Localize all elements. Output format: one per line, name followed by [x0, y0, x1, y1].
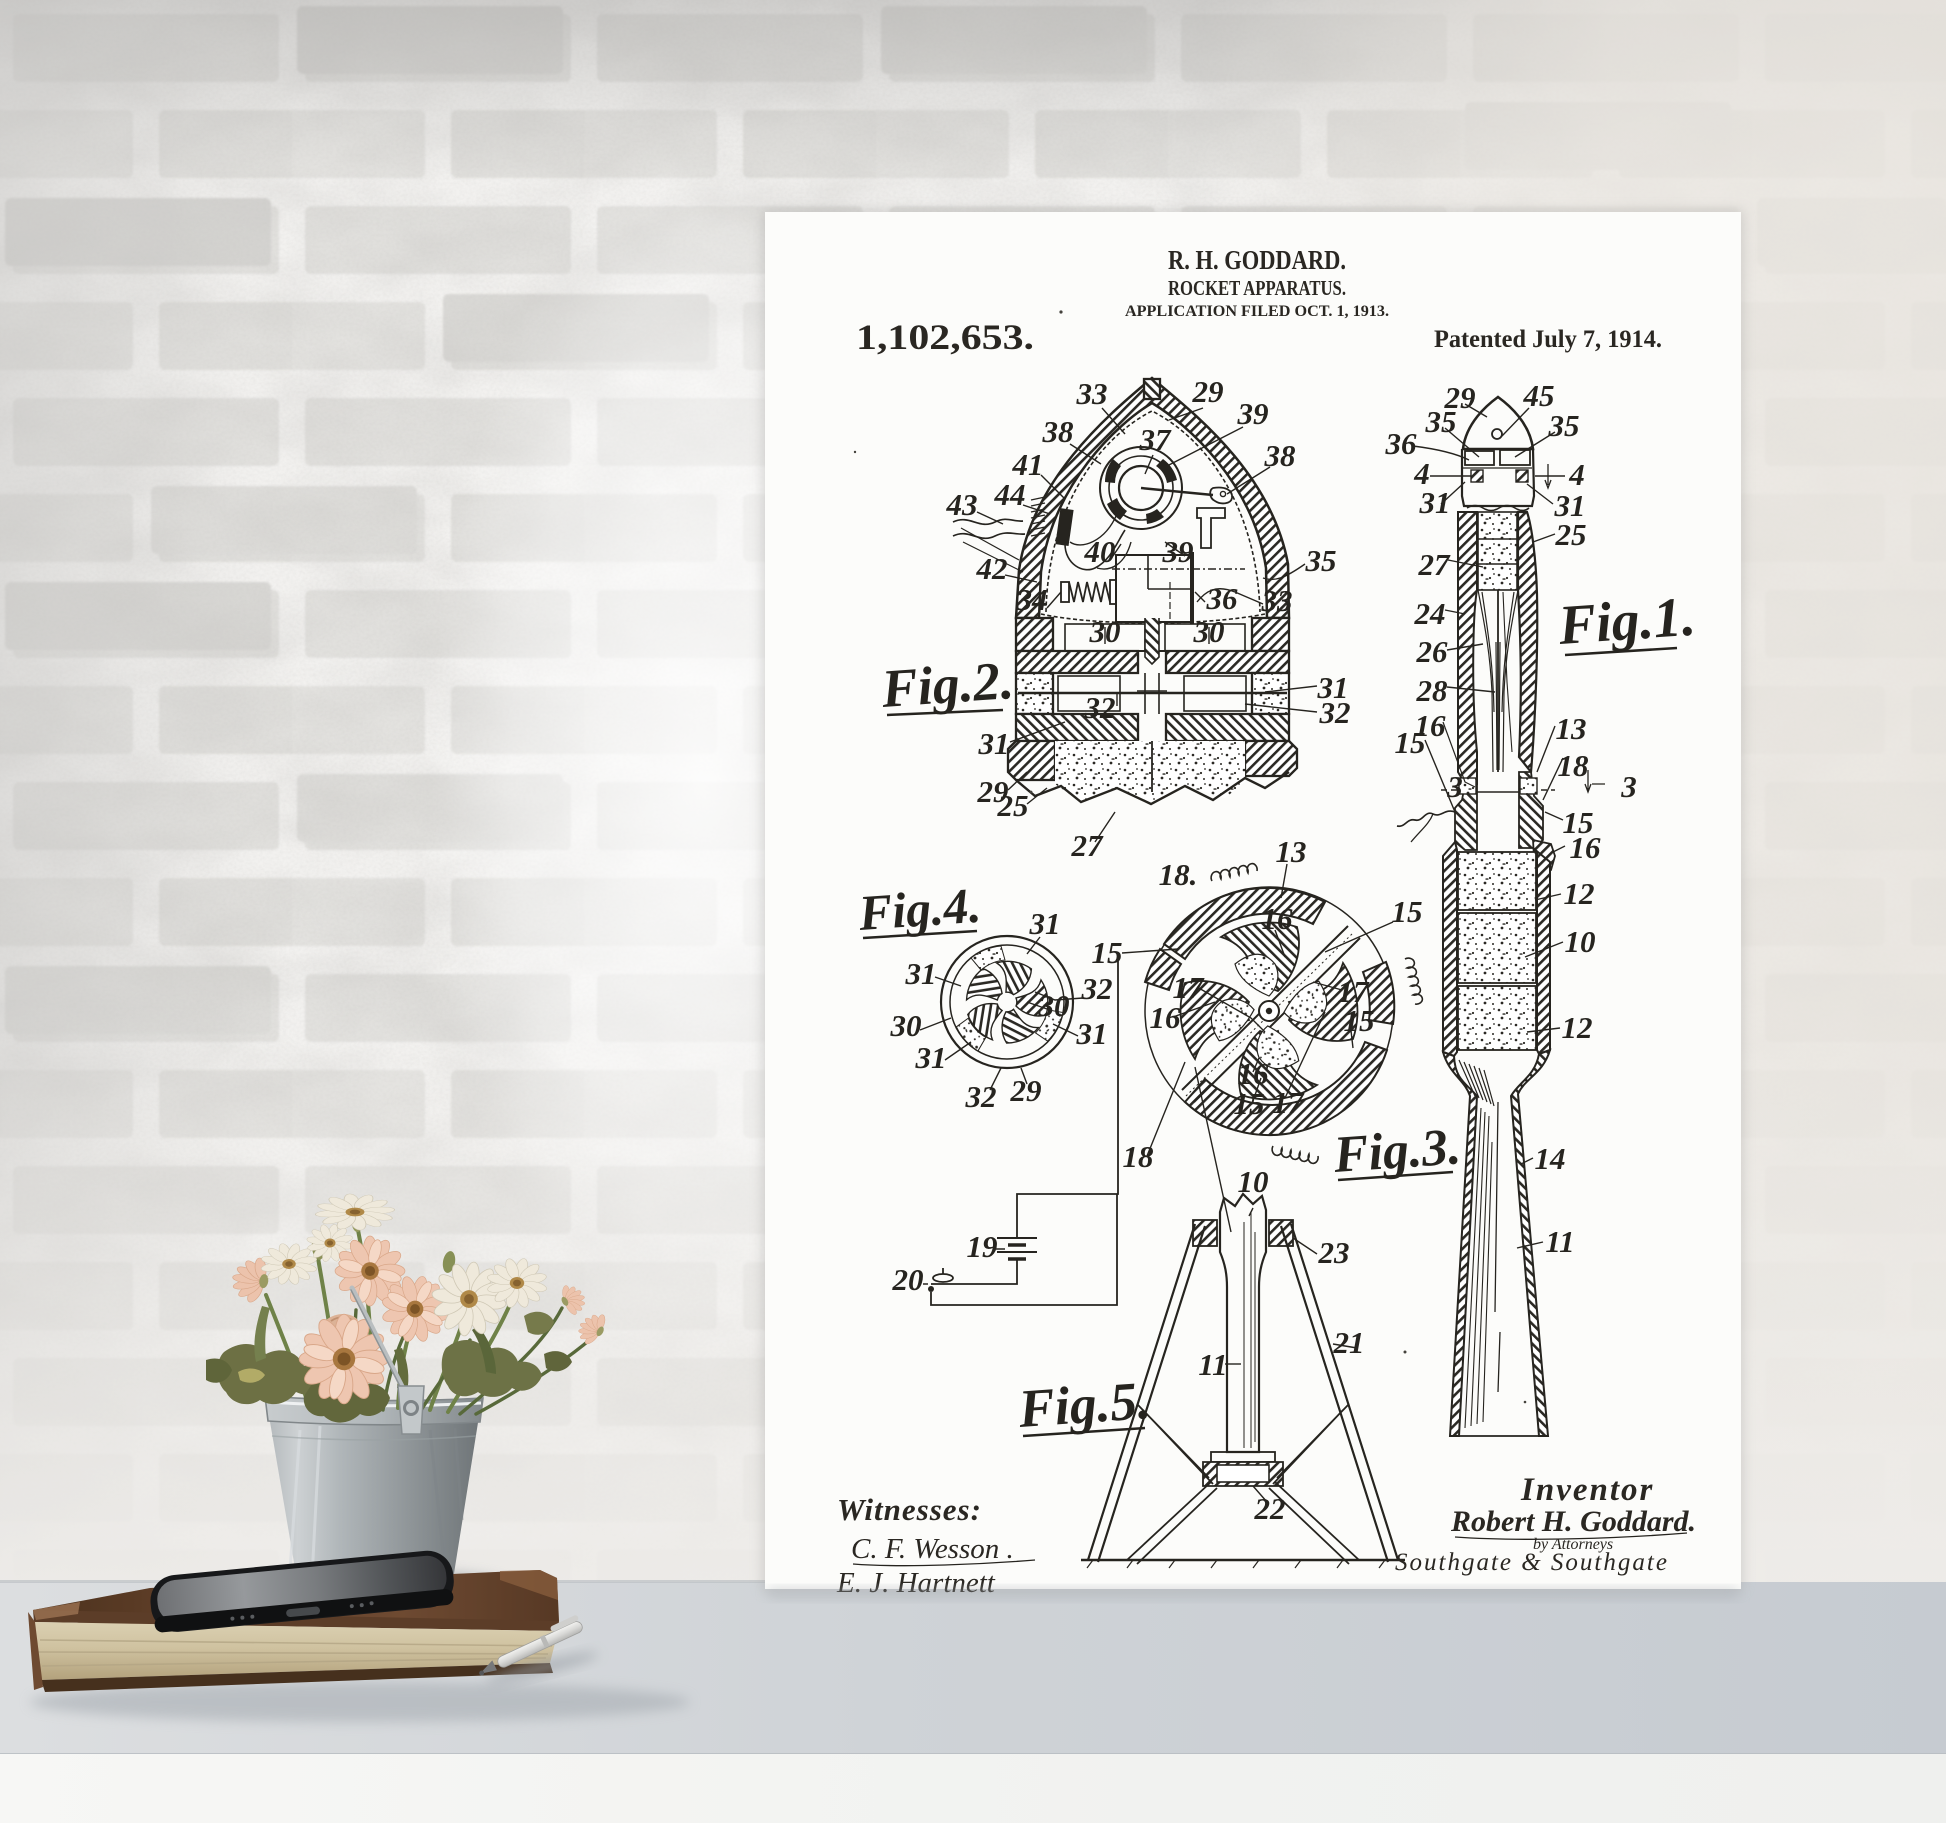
svg-text:32: 32 — [965, 1079, 997, 1114]
svg-text:22: 22 — [1254, 1491, 1286, 1526]
svg-text:23: 23 — [1318, 1235, 1350, 1270]
svg-text:15: 15 — [1344, 1003, 1375, 1038]
svg-text:37: 37 — [1139, 422, 1173, 457]
svg-text:10: 10 — [1565, 924, 1596, 959]
svg-text:35: 35 — [1425, 404, 1457, 439]
svg-text:42: 42 — [976, 551, 1008, 586]
svg-text:35: 35 — [1305, 543, 1337, 578]
svg-text:ROCKET APPARATUS.: ROCKET APPARATUS. — [1168, 276, 1346, 300]
svg-text:12: 12 — [1562, 1010, 1593, 1045]
svg-text:31: 31 — [1419, 485, 1451, 520]
svg-text:32: 32 — [1081, 971, 1113, 1006]
svg-text:1,102,653.: 1,102,653. — [856, 317, 1034, 357]
svg-text:4: 4 — [1568, 457, 1585, 492]
svg-text:35: 35 — [1548, 408, 1580, 443]
svg-text:Robert H. Goddard.: Robert H. Goddard. — [1450, 1505, 1696, 1538]
svg-text:36: 36 — [1206, 581, 1239, 616]
svg-text:15: 15 — [1234, 1086, 1265, 1121]
svg-text:18.: 18. — [1159, 857, 1198, 892]
svg-text:26: 26 — [1416, 634, 1449, 669]
svg-text:14: 14 — [1535, 1141, 1566, 1176]
svg-text:Inventor: Inventor — [1520, 1472, 1654, 1508]
svg-text:43: 43 — [946, 487, 978, 522]
svg-text:Fig.3.: Fig.3. — [1331, 1118, 1463, 1184]
svg-text:30: 30 — [1089, 614, 1121, 649]
svg-text:31: 31 — [978, 726, 1010, 761]
svg-text:30: 30 — [1038, 988, 1070, 1023]
svg-text:38: 38 — [1042, 414, 1075, 449]
svg-text:28: 28 — [1416, 673, 1449, 708]
svg-text:17: 17 — [1273, 1085, 1306, 1120]
svg-text:20: 20 — [892, 1262, 924, 1297]
svg-text:19: 19 — [967, 1229, 998, 1264]
svg-text:31: 31 — [905, 956, 937, 991]
svg-text:34: 34 — [1016, 582, 1048, 617]
svg-text:15: 15 — [1392, 894, 1423, 929]
svg-text:18: 18 — [1558, 748, 1590, 783]
svg-text:16: 16 — [1262, 901, 1294, 936]
svg-text:Patented July 7, 1914.: Patented July 7, 1914. — [1434, 326, 1662, 353]
svg-text:27: 27 — [1418, 547, 1452, 582]
svg-text:44: 44 — [994, 477, 1026, 512]
svg-text:21: 21 — [1333, 1325, 1365, 1360]
svg-text:33: 33 — [1076, 376, 1108, 411]
svg-text:12: 12 — [1564, 876, 1595, 911]
svg-text:11: 11 — [1545, 1224, 1574, 1259]
svg-text:30: 30 — [1193, 614, 1225, 649]
svg-text:R. H. GODDARD.: R. H. GODDARD. — [1168, 245, 1346, 275]
svg-text:31: 31 — [1076, 1016, 1108, 1051]
svg-text:29: 29 — [1010, 1073, 1042, 1108]
svg-text:30: 30 — [890, 1008, 922, 1043]
svg-text:APPLICATION FILED OCT. 1, 1913: APPLICATION FILED OCT. 1, 1913. — [1125, 303, 1389, 320]
svg-text:27: 27 — [1071, 828, 1105, 863]
svg-text:16: 16 — [1570, 830, 1602, 865]
svg-text:13: 13 — [1556, 711, 1587, 746]
svg-text:29: 29 — [1192, 374, 1224, 409]
svg-text:33: 33 — [1261, 583, 1293, 618]
svg-text:16: 16 — [1150, 1000, 1182, 1035]
svg-text:Witnesses:: Witnesses: — [837, 1492, 982, 1527]
svg-text:Southgate & Southgate: Southgate & Southgate — [1395, 1549, 1669, 1576]
svg-text:31: 31 — [1029, 906, 1061, 941]
svg-text:32: 32 — [1319, 695, 1351, 730]
svg-text:25: 25 — [1555, 517, 1587, 552]
svg-text:40: 40 — [1084, 534, 1116, 569]
svg-text:25: 25 — [997, 788, 1029, 823]
svg-text:3: 3 — [1620, 769, 1637, 804]
svg-text:39: 39 — [1237, 396, 1269, 431]
svg-text:18: 18 — [1123, 1139, 1155, 1174]
svg-text:31: 31 — [915, 1040, 947, 1075]
svg-text:Fig.1.: Fig.1. — [1556, 586, 1698, 657]
svg-text:32: 32 — [1084, 690, 1116, 725]
svg-text:24: 24 — [1414, 596, 1446, 631]
svg-text:Fig.2.: Fig.2. — [879, 650, 1016, 719]
svg-text:C. F. Wesson .: C. F. Wesson . — [851, 1533, 1014, 1565]
svg-text:11: 11 — [1198, 1347, 1227, 1382]
svg-text:36: 36 — [1385, 426, 1418, 461]
svg-text:38: 38 — [1264, 438, 1297, 473]
svg-text:15: 15 — [1395, 725, 1426, 760]
svg-text:13: 13 — [1276, 834, 1307, 869]
svg-text:39: 39 — [1162, 534, 1194, 569]
svg-text:3: 3 — [1446, 769, 1463, 804]
svg-text:10: 10 — [1238, 1164, 1269, 1199]
